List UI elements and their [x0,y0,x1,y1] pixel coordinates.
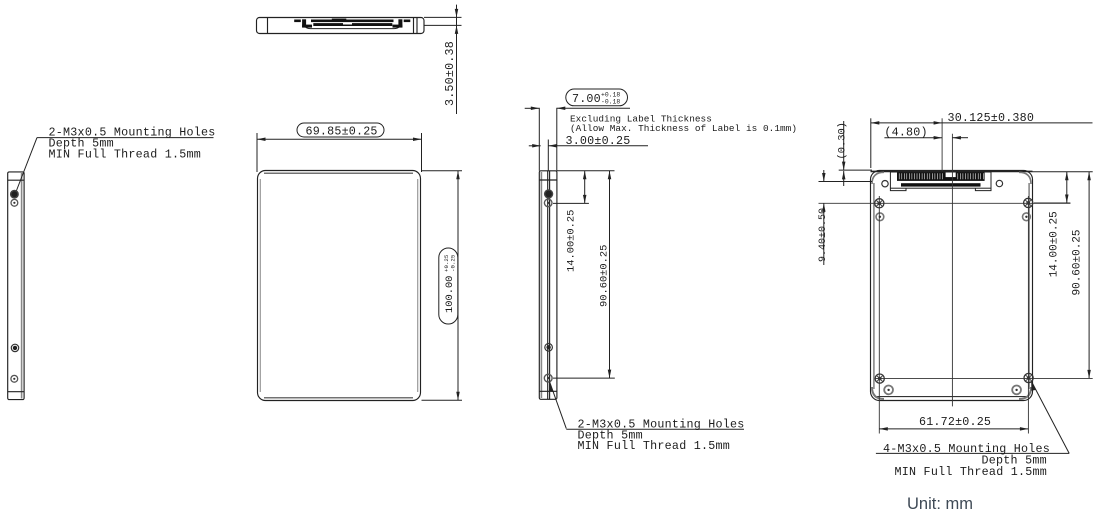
svg-text:MIN Full Thread 1.5mm: MIN Full Thread 1.5mm [49,148,202,162]
svg-text:100.00: 100.00 [444,276,456,313]
svg-text:69.85±0.25: 69.85±0.25 [306,125,378,139]
svg-text:MIN Full Thread 1.5mm: MIN Full Thread 1.5mm [895,465,1048,479]
svg-text:90.60±0.25: 90.60±0.25 [598,245,610,307]
svg-text:30.125±0.380: 30.125±0.380 [948,111,1035,125]
svg-text:7.00: 7.00 [572,92,601,106]
svg-text:(0.30): (0.30) [836,122,848,159]
svg-text:MIN Full Thread 1.5mm: MIN Full Thread 1.5mm [578,439,731,453]
svg-text:-0.18: -0.18 [601,99,620,106]
svg-text:3.50±0.38: 3.50±0.38 [443,41,457,106]
svg-text:Unit: mm: Unit: mm [907,495,973,513]
svg-text:9.40±0.50: 9.40±0.50 [818,208,829,262]
svg-text:3.00±0.25: 3.00±0.25 [566,134,631,148]
svg-text:(4.80): (4.80) [884,125,927,139]
svg-text:61.72±0.25: 61.72±0.25 [919,415,991,429]
svg-text:14.00±0.25: 14.00±0.25 [566,210,578,272]
svg-text:-0.25: -0.25 [449,254,456,272]
svg-text:(Allow Max. Thickness of Label: (Allow Max. Thickness of Label is 0.1mm) [570,123,797,134]
svg-text:90.60±0.25: 90.60±0.25 [1072,229,1084,295]
svg-text:14.00±0.25: 14.00±0.25 [1048,211,1060,277]
svg-text:+0.18: +0.18 [601,92,620,99]
